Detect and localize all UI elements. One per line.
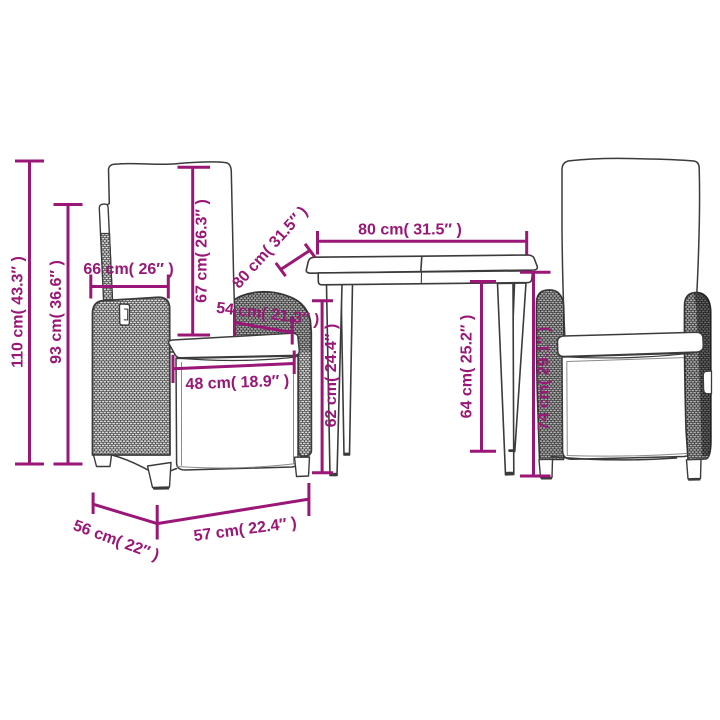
svg-text:80 cm( 31.5″ ): 80 cm( 31.5″ )	[358, 222, 462, 239]
svg-text:110 cm( 43.3″ ): 110 cm( 43.3″ )	[10, 256, 27, 368]
svg-text:67 cm( 26.3″ ): 67 cm( 26.3″ )	[194, 199, 211, 303]
svg-text:62 cm( 24.4″ ): 62 cm( 24.4″ )	[323, 324, 340, 428]
svg-text:57 cm( 22.4″ ): 57 cm( 22.4″ )	[193, 515, 298, 545]
svg-text:48 cm( 18.9″ ): 48 cm( 18.9″ )	[185, 373, 289, 394]
svg-text:74 cm( 29.1″ ): 74 cm( 29.1″ )	[536, 327, 553, 431]
svg-text:66 cm( 26″ ): 66 cm( 26″ )	[83, 261, 173, 278]
svg-text:80 cm( 31.5″ ): 80 cm( 31.5″ )	[229, 204, 311, 293]
svg-text:93 cm( 36.6″ ): 93 cm( 36.6″ )	[48, 260, 65, 364]
svg-text:56 cm( 22″ ): 56 cm( 22″ )	[71, 517, 162, 564]
svg-text:64 cm( 25.2″ ): 64 cm( 25.2″ )	[459, 315, 476, 419]
